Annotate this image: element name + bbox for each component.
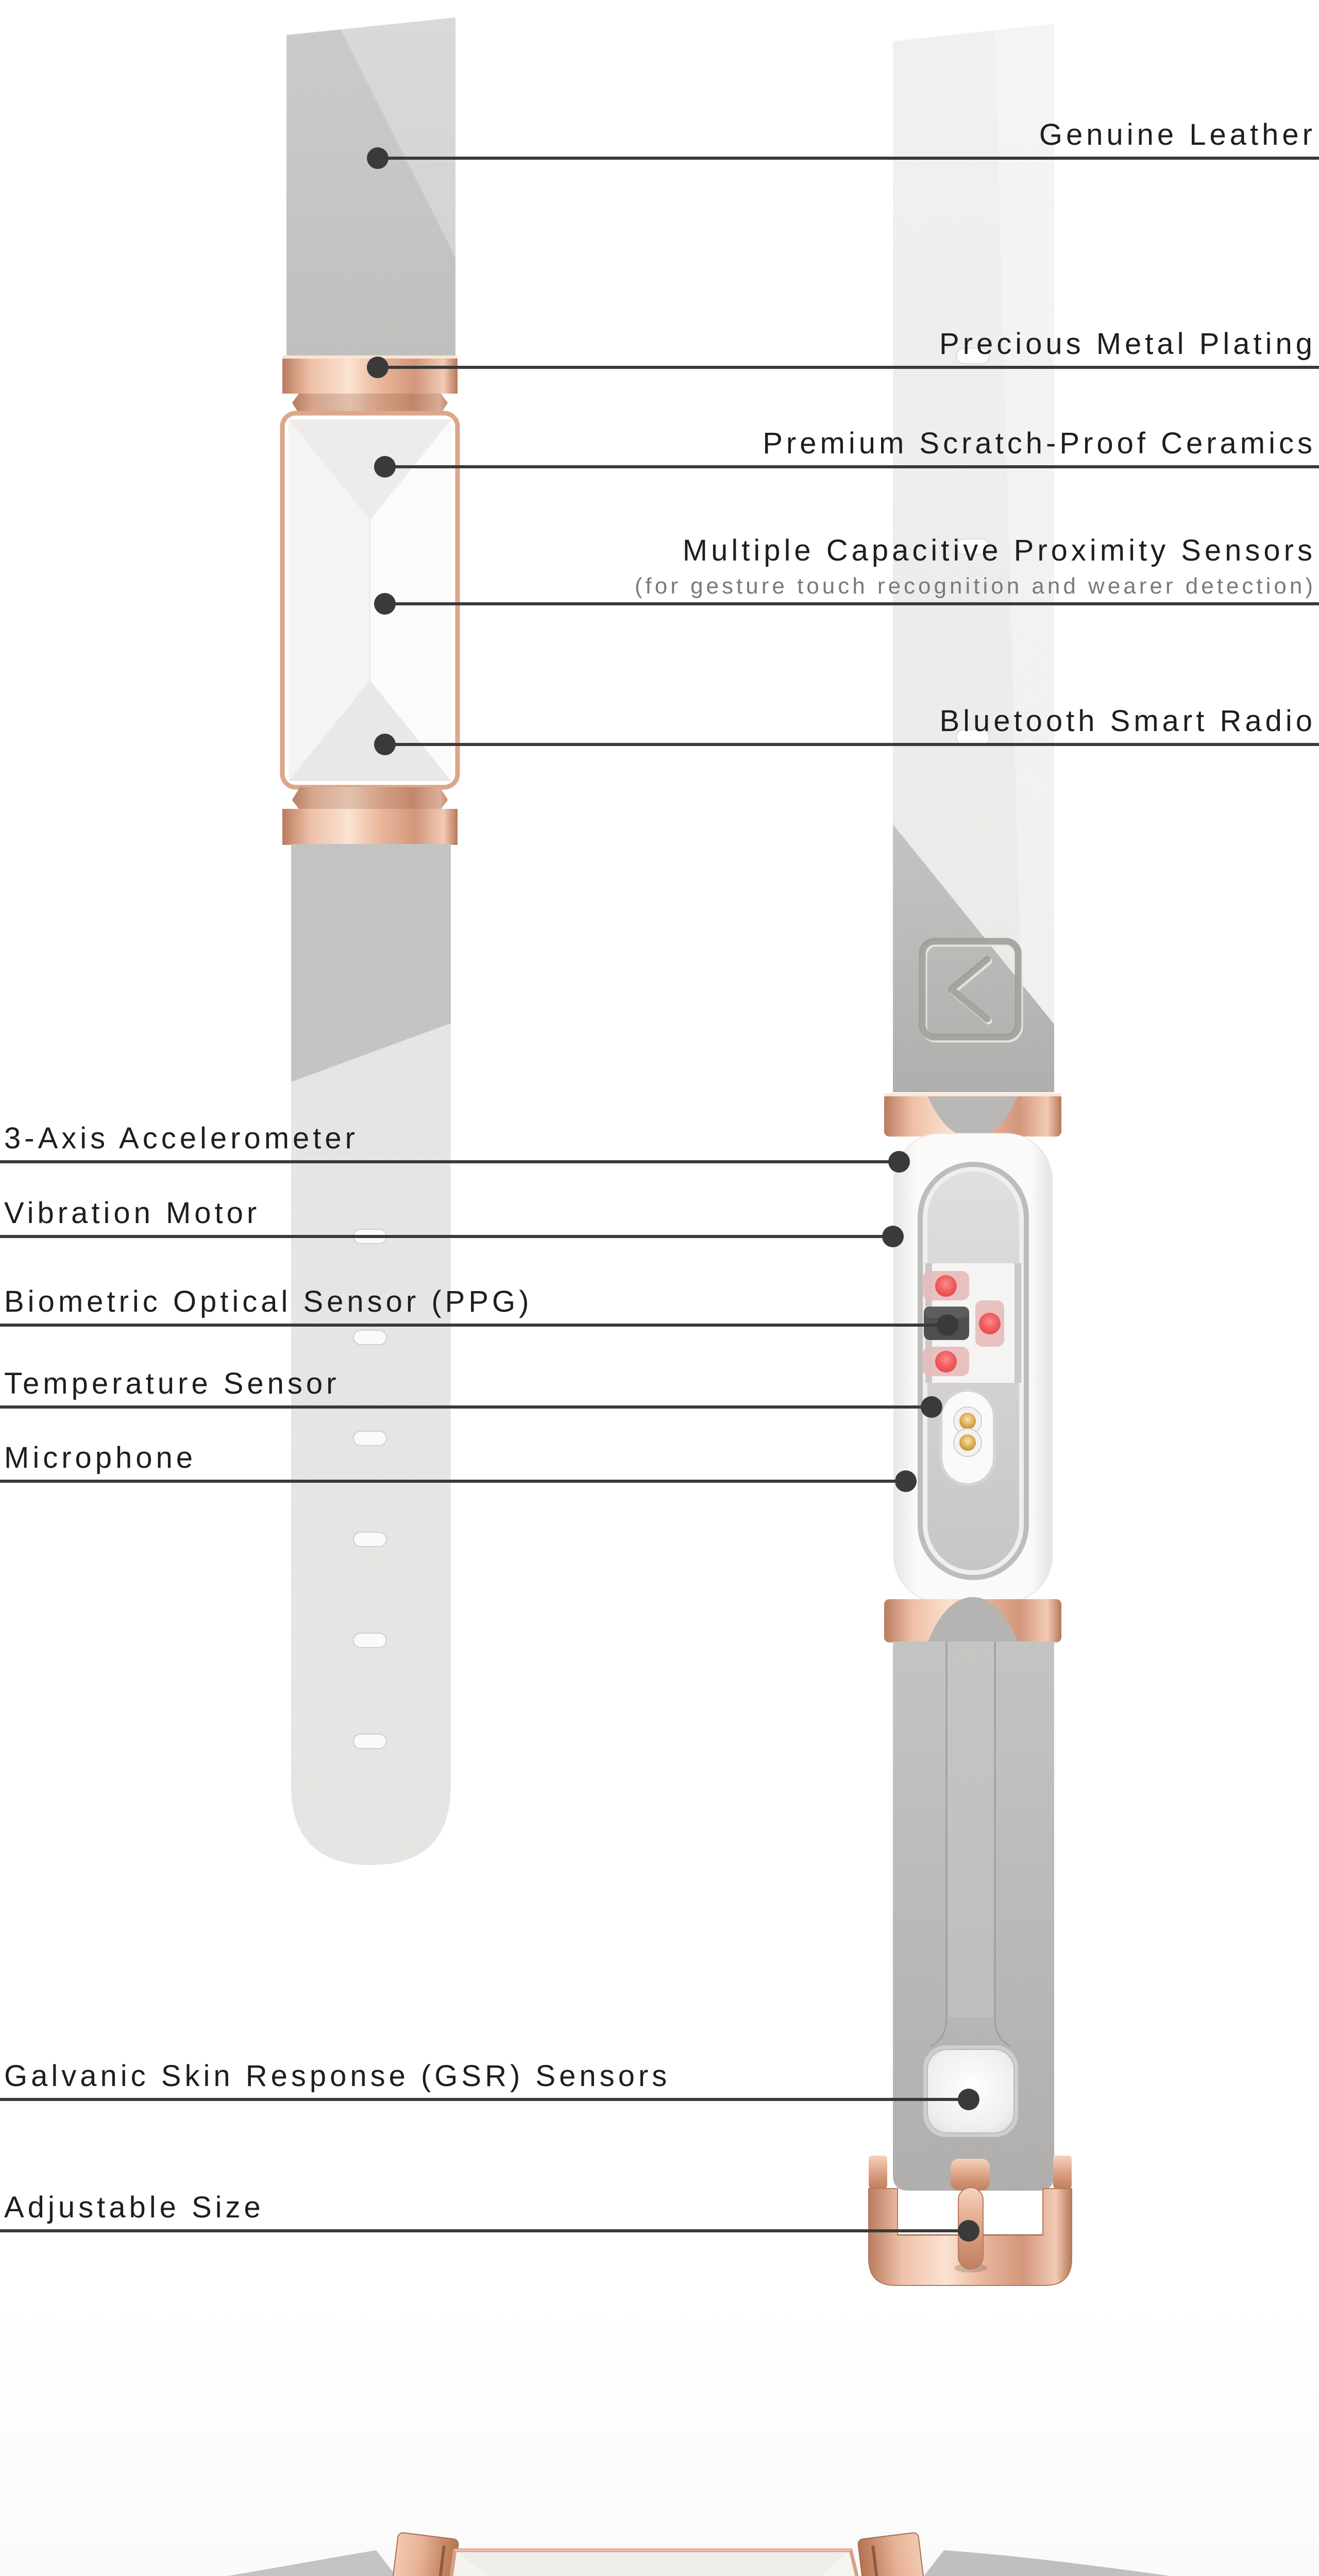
callout-dot [367,357,388,378]
callout-dot [888,1151,910,1173]
callout-dot [937,1314,958,1336]
callout-label: Biometric Optical Sensor (PPG) [4,1287,532,1317]
callout-label: Temperature Sensor [4,1369,340,1399]
watch-front-ceramic-face [282,413,458,787]
watch-back-strap-bottom [886,1638,1061,2195]
callout-label: Vibration Motor [4,1198,260,1228]
callout-line [0,1405,932,1409]
callout-label: Multiple Capacitive Proximity Sensors [683,536,1316,566]
callout-dot [374,593,396,615]
sensor-module [920,1164,1026,1578]
callout-label: Adjustable Size [4,2193,264,2223]
watch-front-strap-bottom [283,840,459,1870]
callout-line [385,465,1319,468]
callout-line [0,1480,906,1483]
watch-front-strap-top [278,10,464,366]
callout-label: Galvanic Skin Response (GSR) Sensors [4,2061,670,2091]
callout-label: 3-Axis Accelerometer [4,1124,359,1154]
callout-line [0,2098,969,2101]
callout-label: Precious Metal Plating [939,329,1316,359]
callout-line [0,1235,893,1238]
callout-dot [374,456,396,478]
callout-line [0,1324,948,1327]
charger-scene [0,2298,1319,2576]
watch-face-top-view [437,2550,882,2576]
callout-label: Genuine Leather [1039,120,1316,150]
callout-line [378,366,1319,369]
charge-contact-pad [941,1390,994,1485]
callout-sublabel: (for gesture touch recognition and weare… [635,575,1316,598]
watch-back-hinge-bottom [884,1597,1061,1642]
callout-dot [374,734,396,755]
callout-dot [958,2089,979,2110]
watch-back-case [894,1133,1052,1602]
watch-back-hinge-top [884,1093,1061,1138]
callout-line [385,602,1319,605]
callout-dot [882,1226,904,1247]
watch-front [278,10,464,1870]
callout-line [0,2229,969,2232]
callout-label: Premium Scratch-Proof Ceramics [763,429,1316,459]
diagram-canvas: Genuine Leather Precious Metal Plating P… [0,0,1319,2576]
callout-dot [895,1470,917,1492]
callout-label: Microphone [4,1443,196,1473]
watch-front-metal-band-bottom [282,787,458,845]
callout-line [378,157,1319,160]
callout-label: Bluetooth Smart Radio [939,706,1316,736]
charge-pin [959,1434,976,1451]
callout-dot [921,1396,942,1418]
callout-line [0,1160,899,1163]
callout-dot [958,2220,979,2242]
callout-line [385,743,1319,746]
callout-dot [367,147,388,169]
charge-pin [959,1413,976,1429]
